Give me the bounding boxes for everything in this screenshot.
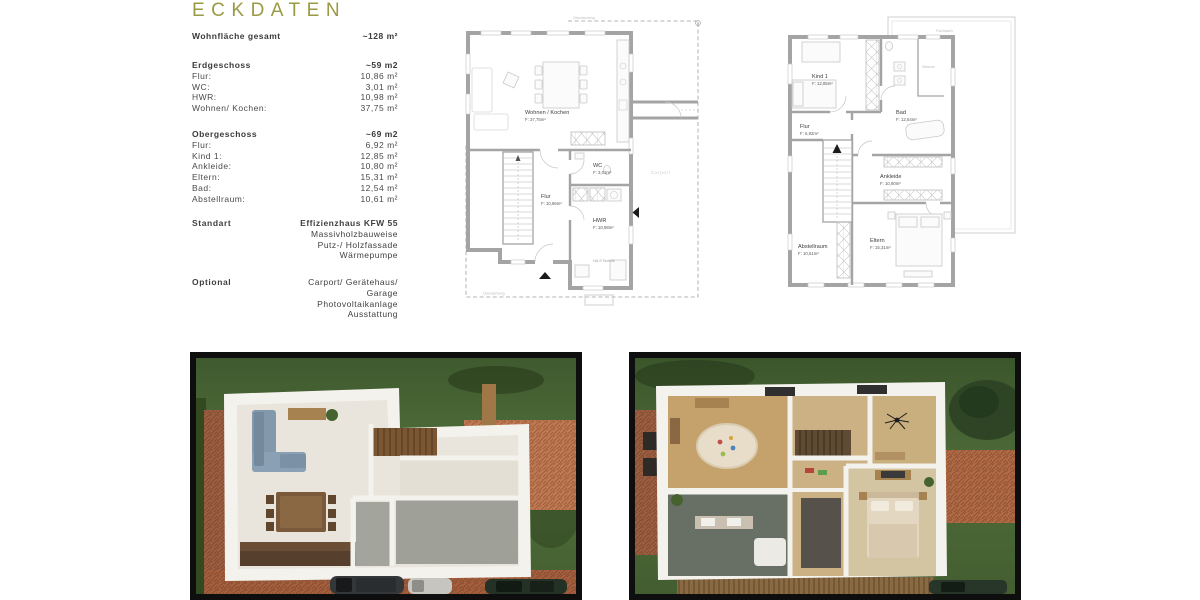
kid-desk [670, 418, 680, 444]
eg-heading-value: ~59 m2 [366, 60, 398, 71]
og-heading: Obergeschoss [192, 129, 257, 140]
optional-label: Optional [192, 277, 231, 320]
room-area-wohnen: F: 37,75m² [525, 117, 546, 122]
erdgeschoss-spec-section: Erdgeschoss ~59 m2 Flur:10,86 m² WC:3,01… [192, 60, 398, 114]
car-green [485, 579, 567, 594]
car-silver [408, 578, 452, 594]
kid-room-rug [697, 424, 757, 468]
room-label-ankleide: Ankleide [880, 174, 901, 180]
floor-plan-erdgeschoss: Überdachung Überdachung Carport [455, 10, 705, 308]
render-obergeschoss-3d [629, 352, 1021, 600]
og-staircase [823, 140, 852, 222]
room-area-flur: F: 10,86m² [541, 201, 562, 206]
room-label-kind1: Kind 1 [812, 74, 828, 80]
ueberdachung-label-bottom: Überdachung [483, 292, 505, 296]
eg-staircase [503, 152, 533, 244]
room-label-eltern: Eltern [870, 238, 885, 244]
doormat [585, 295, 613, 305]
total-area-row: Wohnfläche gesamt ~128 m² [192, 31, 398, 42]
room-label-abstellraum: Abstellraum [798, 244, 828, 250]
obergeschoss-spec-section: Obergeschoss ~69 m2 Flur:6,92 m² Kind 1:… [192, 129, 398, 205]
spec-row: Flur:10,86 m² [192, 71, 398, 82]
sideboard [288, 408, 326, 420]
room-area-kind1: F: 12,85m² [812, 81, 833, 86]
floor-plan-obergeschoss: Flachdach [778, 8, 1026, 300]
spec-row: Wohnen/ Kochen:37,75 m² [192, 103, 398, 114]
plant [326, 409, 338, 421]
room-label-flur: Flur [541, 194, 551, 200]
eg-heading: Erdgeschoss [192, 60, 251, 71]
render-eg-scene [196, 358, 576, 594]
technik-label: HA-S Technik [593, 259, 615, 263]
room-area-wc: F: 3,01m² [593, 170, 612, 175]
optional-line: Carport/ Gerätehaus/ [308, 277, 398, 288]
room-area-hwr: F: 10,98m² [593, 225, 614, 230]
side-entrance-marker-icon [633, 207, 640, 218]
flachdach-label: Flachdach [936, 29, 953, 33]
optional-line: Photovoltaikanlage [308, 299, 398, 310]
room-area-eltern: F: 15,31m² [870, 245, 891, 250]
spec-row: Flur:6,92 m² [192, 140, 398, 151]
spec-row: Eltern:15,31 m² [192, 172, 398, 183]
standart-line: Putz-/ Holzfassade [300, 240, 398, 251]
room-area-abstellraum: F: 10,61m² [798, 251, 819, 256]
optional-line: Ausstattung [308, 309, 398, 320]
spec-row: WC:3,01 m² [192, 82, 398, 93]
standart-line: Massivholzbauweise [300, 229, 398, 240]
standart-line: Wärmepumpe [300, 250, 398, 261]
optional-section: Optional Carport/ Gerätehaus/ Garage Pho… [192, 277, 398, 320]
og-car-green [929, 580, 1007, 594]
render-erdgeschoss-3d [190, 352, 582, 600]
standart-label: Standart [192, 218, 231, 261]
standart-line: Effizienzhaus KFW 55 [300, 218, 398, 229]
render-og-scene [635, 358, 1015, 594]
standart-section: Standart Effizienzhaus KFW 55 Massivholz… [192, 218, 398, 261]
room-area-flur-og: F: 6,92m² [800, 131, 819, 136]
bench [875, 452, 905, 460]
room-area-bad: F: 12,54m² [896, 117, 917, 122]
page-title: ECKDATEN [192, 0, 346, 22]
kid-shelf [695, 398, 729, 408]
og-house [656, 382, 947, 580]
room-label-bad: Bad [896, 110, 906, 116]
runner-rug [801, 498, 841, 568]
carport-label: Carport [651, 170, 671, 175]
room-label-flur-og: Flur [800, 124, 810, 130]
spec-row: HWR:10,98 m² [192, 92, 398, 103]
optional-line: Garage [308, 288, 398, 299]
og-heading-value: ~69 m2 [366, 129, 398, 140]
spec-row: Ankleide:10,80 m² [192, 161, 398, 172]
spec-row: Bad:12,54 m² [192, 183, 398, 194]
room-label-wc: WC [593, 163, 602, 169]
car-dark-suv [330, 576, 404, 594]
waesche-label: Wäsche [922, 65, 935, 69]
dining-table [266, 492, 336, 532]
entrance-marker-icon [539, 272, 551, 279]
room-label-wohnen: Wohnen / Kochen [525, 110, 569, 116]
total-area-value: ~128 m² [363, 31, 398, 42]
room-area-ankleide: F: 10,80m² [880, 181, 901, 186]
spec-row: Abstellraum:10,61 m² [192, 194, 398, 205]
ueberdachung-label: Überdachung [573, 16, 595, 20]
total-area-label: Wohnfläche gesamt [192, 31, 281, 42]
room-label-hwr: HWR [593, 218, 606, 224]
spec-row: Kind 1:12,85 m² [192, 151, 398, 162]
